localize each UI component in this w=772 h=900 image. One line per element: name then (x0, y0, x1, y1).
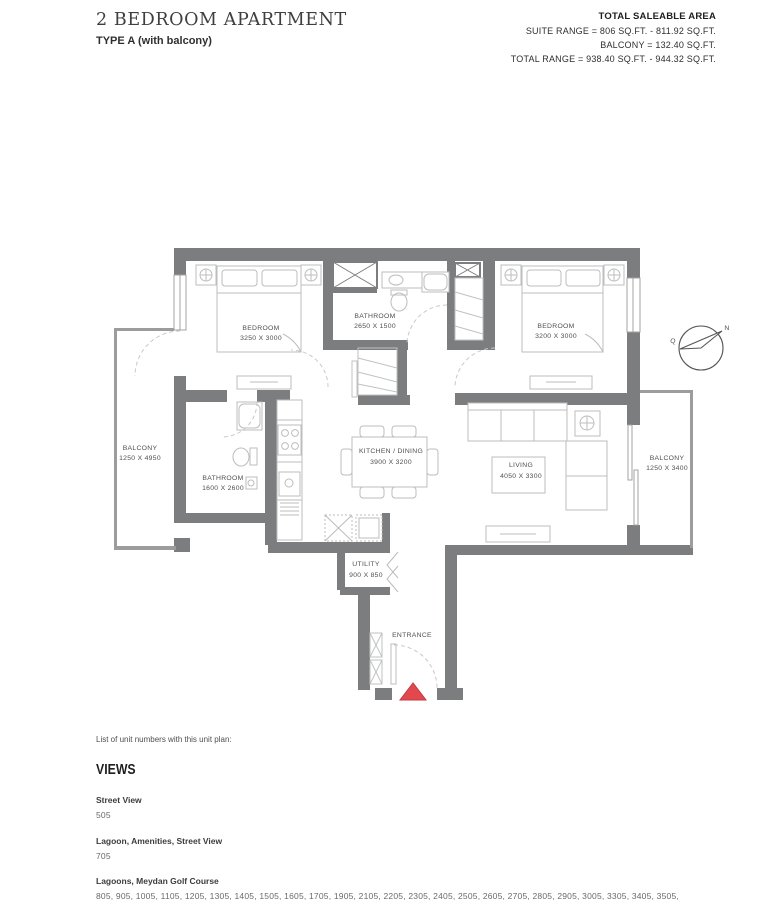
door-swings (135, 305, 495, 688)
room-label: BATHROOM (354, 313, 395, 320)
dresser-icon (530, 376, 592, 389)
room-label: BEDROOM (242, 325, 279, 332)
shaft-icon (333, 262, 377, 288)
tv-console-icon (486, 526, 550, 542)
utility-door-icon (387, 552, 398, 592)
view-units: 805, 905, 1005, 1105, 1205, 1305, 1405, … (96, 890, 696, 900)
compass-north-label: N (724, 325, 729, 332)
bedroom-right-door-swing (455, 348, 495, 388)
view-name: Lagoons, Meydan Golf Course (96, 876, 716, 886)
room-dims: 1250 X 4950 (119, 455, 161, 462)
balcony-door-swing (135, 331, 180, 376)
room-dims: 1250 X 3400 (646, 465, 688, 472)
unit-list-section: List of unit numbers with this unit plan… (96, 735, 716, 900)
unit-list-intro: List of unit numbers with this unit plan… (96, 735, 716, 744)
room-dims: 900 X 850 (349, 572, 383, 579)
hall-closet-icon (358, 348, 397, 395)
room-dims: 3200 X 3000 (535, 333, 577, 340)
side-table-icon (575, 411, 600, 436)
views-heading: VIEWS (96, 761, 604, 778)
compass-icon: N Q (670, 325, 729, 370)
wardrobe-icon (455, 278, 483, 340)
balcony-sliding-door-icon (628, 425, 638, 525)
kitchen-sink-icon (279, 472, 300, 496)
corridor-closet-icon (370, 633, 382, 684)
view-name: Lagoon, Amenities, Street View (96, 836, 716, 846)
bathroom-top-fixtures (382, 272, 449, 311)
room-dims: 3250 X 3000 (240, 335, 282, 342)
washer-icon (325, 515, 382, 541)
room-label: KITCHEN / DINING (359, 448, 423, 455)
entrance-door-swing (394, 645, 437, 688)
toilet-icon (250, 448, 257, 465)
entrance-door-leaf (391, 644, 396, 684)
room-dims: 3900 X 3200 (370, 459, 412, 466)
entrance-marker-icon (400, 683, 426, 700)
bedroom-left-door-swing (291, 350, 328, 387)
stove-icon (278, 425, 301, 455)
floor-plan-page: 2 BEDROOM APARTMENT TYPE A (with balcony… (0, 0, 772, 900)
room-label: BEDROOM (537, 323, 574, 330)
room-label: LIVING (509, 462, 533, 469)
room-label: BALCONY (123, 445, 158, 452)
room-label: BATHROOM (202, 475, 243, 482)
view-units: 505 (96, 809, 696, 823)
bedroom-left-window-icon (174, 275, 186, 330)
view-units: 705 (96, 850, 696, 864)
bathtub-icon (237, 402, 262, 430)
room-dims: 2650 X 1500 (354, 323, 396, 330)
shaft-icon (455, 263, 480, 277)
kitchen-counter-icon (277, 400, 302, 540)
room-label: BALCONY (650, 455, 685, 462)
room-dims: 1600 X 2600 (202, 485, 244, 492)
compass-mark-label: Q (670, 338, 676, 345)
view-name: Street View (96, 795, 716, 805)
entrance-label: ENTRANCE (392, 632, 432, 639)
bathroom-top-door-swing (407, 305, 447, 345)
room-dims: 4050 X 3300 (500, 473, 542, 480)
dresser-icon (237, 376, 291, 389)
bedroom-right-window-icon (627, 278, 640, 332)
room-label: UTILITY (352, 561, 380, 568)
